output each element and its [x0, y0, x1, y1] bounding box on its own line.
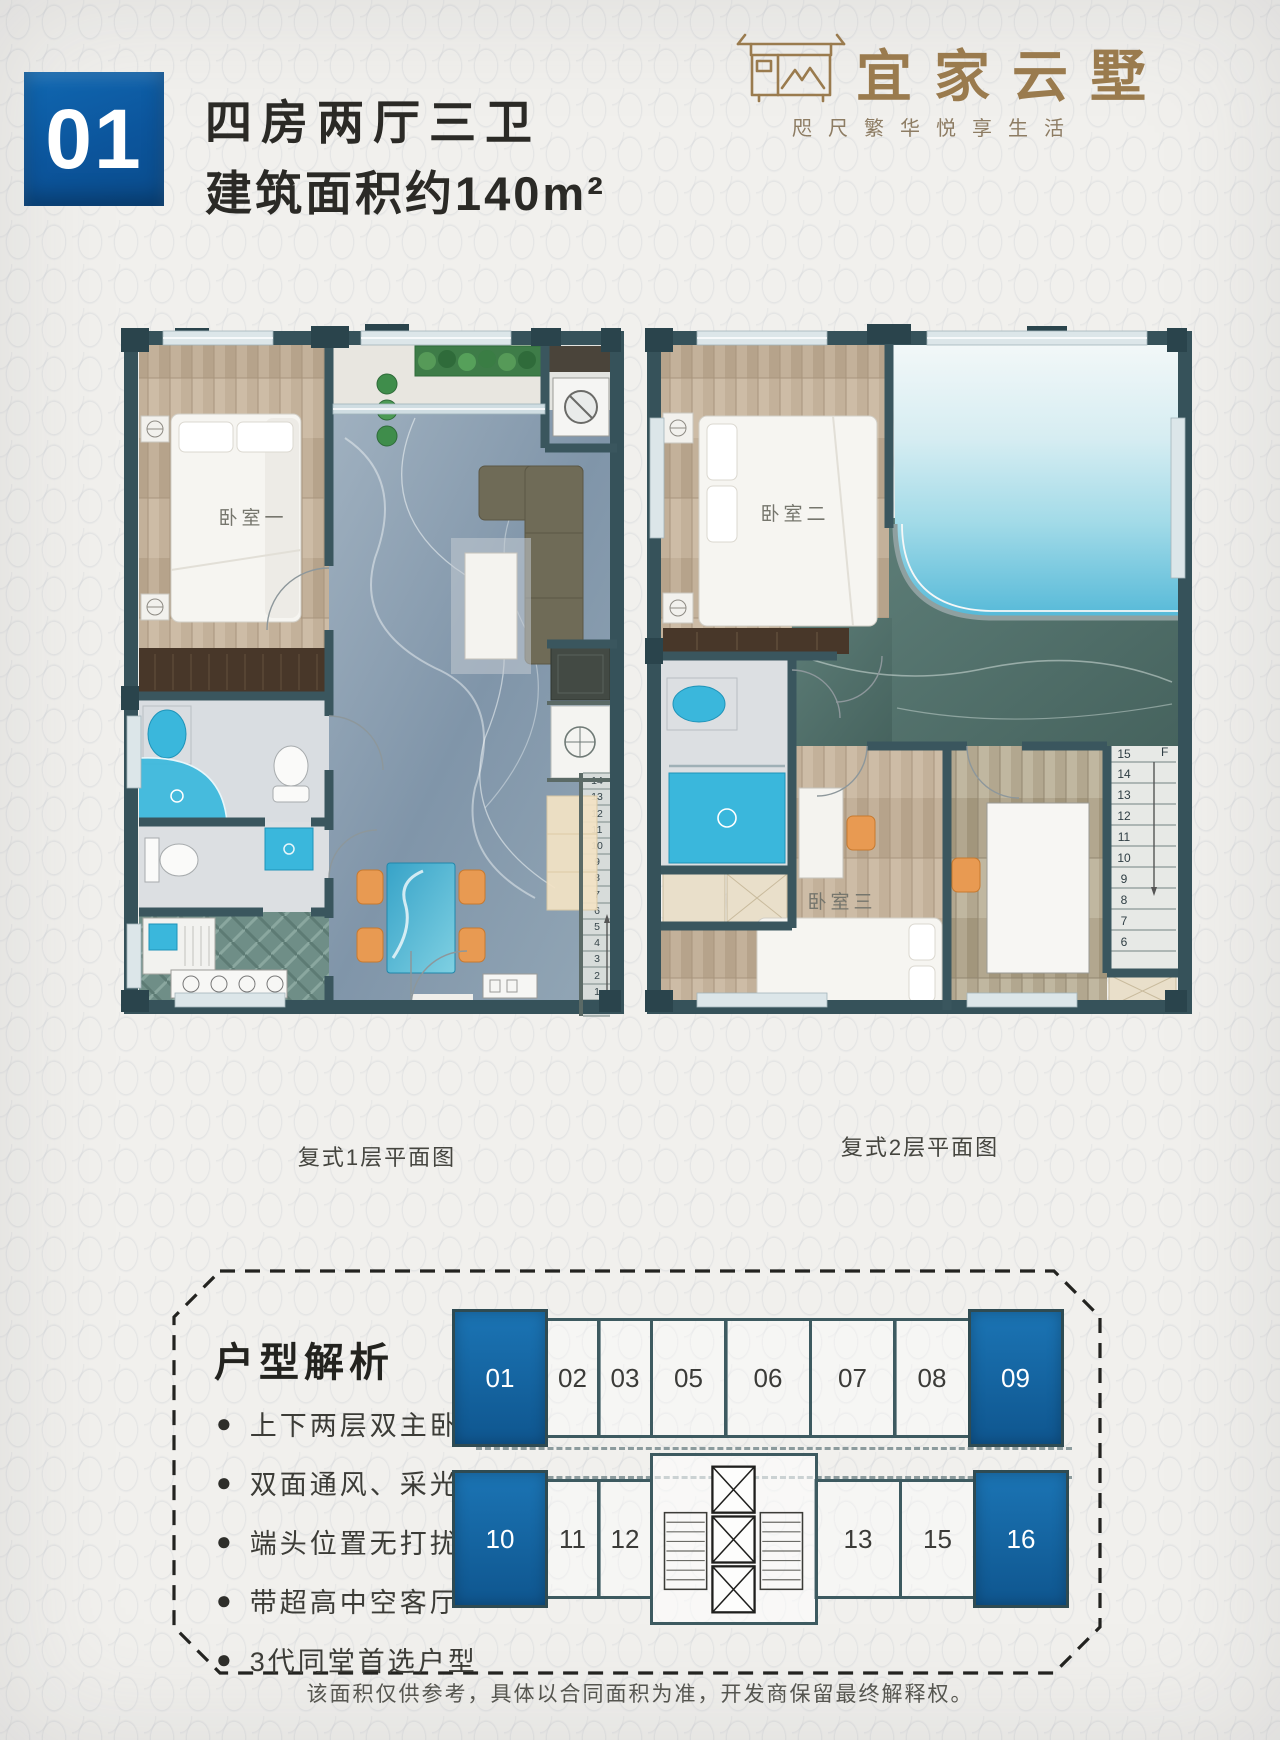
washing-machine-icon	[547, 346, 617, 436]
stair-step-number: 10	[1117, 851, 1131, 865]
feature-item: ● 带超高中空客厅	[216, 1581, 478, 1620]
stair-step-number: 15	[1117, 747, 1131, 761]
feature-text: 3代同堂首选户型	[250, 1640, 478, 1679]
stair-step-number: 7	[1121, 914, 1128, 928]
electrical-panel-icon	[483, 974, 537, 998]
unit-cell-01: 01	[452, 1309, 548, 1447]
elevator-core	[650, 1453, 818, 1625]
bullet-icon: ●	[216, 1646, 235, 1673]
page-title-rooms: 四房两厅三卫	[205, 84, 541, 153]
unit-cell-06: 06	[724, 1318, 812, 1438]
analysis-heading: 户型解析	[214, 1330, 394, 1388]
feature-item: ● 上下两层双主卧	[216, 1404, 478, 1443]
building-key-plan: 01 02 03 05 06 07 08 09 10 11 12	[452, 1318, 1096, 1625]
brand-tagline: 咫尺繁华悦享生活	[792, 112, 1080, 141]
powder-room	[551, 706, 610, 778]
stair-step-number: 8	[1121, 893, 1128, 907]
floorplan-level2: 卧室二 卧室三	[637, 318, 1202, 1022]
unit-cell-13: 13	[814, 1479, 902, 1599]
unit-cell-09: 09	[968, 1309, 1064, 1447]
feature-item: ● 3代同堂首选户型	[216, 1640, 478, 1679]
bedroom1-label: 卧室一	[218, 507, 287, 529]
stair-step-number: 2	[594, 970, 600, 982]
bullet-icon: ●	[216, 1469, 235, 1496]
void-pool-area	[893, 342, 1178, 618]
plan1-caption: 复式1层平面图	[212, 1140, 542, 1172]
bullet-icon: ●	[216, 1587, 235, 1614]
unit-cell-05: 05	[650, 1318, 728, 1438]
stair-step-number: 3	[594, 953, 600, 965]
key-plan-bottom-row: 10 11 12	[452, 1479, 1096, 1625]
feature-item: ● 双面通风、采光	[216, 1463, 478, 1502]
unit-cell-10: 10	[452, 1470, 548, 1608]
stair-step-number: 9	[1121, 872, 1128, 886]
stair-closet	[551, 648, 610, 700]
stair-step-number: 6	[1121, 935, 1128, 949]
unit-number: 01	[45, 91, 142, 188]
unit-cell-03: 03	[597, 1318, 653, 1438]
floorplan-level1: 卧室一	[115, 318, 640, 1022]
brand-pavilion-icon	[735, 28, 847, 108]
stair-step-number: 5	[594, 921, 600, 933]
feature-text: 上下两层双主卧	[250, 1404, 460, 1443]
bullet-icon: ●	[216, 1410, 235, 1437]
unit-cell-11: 11	[545, 1479, 601, 1599]
brochure-page: 01 四房两厅三卫 建筑面积约140m² 宜家云墅 咫尺繁华悦享生活	[0, 0, 1280, 1740]
living-rug-console	[451, 538, 531, 674]
feature-text: 带超高中空客厅	[250, 1581, 460, 1620]
unit-cell-02: 02	[545, 1318, 601, 1438]
feature-item: ● 端头位置无打扰	[216, 1522, 478, 1561]
feature-list: ● 上下两层双主卧 ● 双面通风、采光 ● 端头位置无打扰 ● 带超高中空客厅 …	[216, 1404, 478, 1699]
unit-cell-07: 07	[809, 1318, 897, 1438]
disclaimer-text: 该面积仅供参考，具体以合同面积为准，开发商保留最终解释权。	[0, 1678, 1280, 1708]
stair-cabinet	[547, 796, 597, 910]
unit-cell-15: 15	[899, 1479, 977, 1599]
elevator-core-diagram	[653, 1457, 814, 1622]
stair-direction-label: F	[1161, 745, 1168, 759]
stair-step-number: 13	[1117, 788, 1131, 802]
unit-number-badge: 01	[24, 72, 164, 206]
unit-cell-16: 16	[973, 1470, 1069, 1608]
stair-step-number: 14	[1117, 767, 1131, 781]
bedroom3-label: 卧室三	[807, 891, 876, 913]
stair-step-number: 11	[1118, 830, 1131, 844]
stair-step-number: 12	[1117, 809, 1131, 823]
bullet-icon: ●	[216, 1528, 235, 1555]
stair-step-number: 4	[594, 937, 600, 949]
brand-name: 宜家云墅	[856, 32, 1168, 113]
unit-cell-08: 08	[893, 1318, 971, 1438]
feature-text: 端头位置无打扰	[250, 1522, 460, 1561]
plan2-caption: 复式2层平面图	[755, 1130, 1085, 1162]
key-plan-top-row: 01 02 03 05 06 07 08 09	[452, 1318, 1096, 1447]
hall-closet	[663, 874, 787, 922]
page-title-area: 建筑面积约140m²	[205, 155, 606, 224]
bedroom2-label: 卧室二	[760, 503, 829, 525]
feature-text: 双面通风、采光	[250, 1463, 460, 1502]
unit-cell-12: 12	[597, 1479, 653, 1599]
